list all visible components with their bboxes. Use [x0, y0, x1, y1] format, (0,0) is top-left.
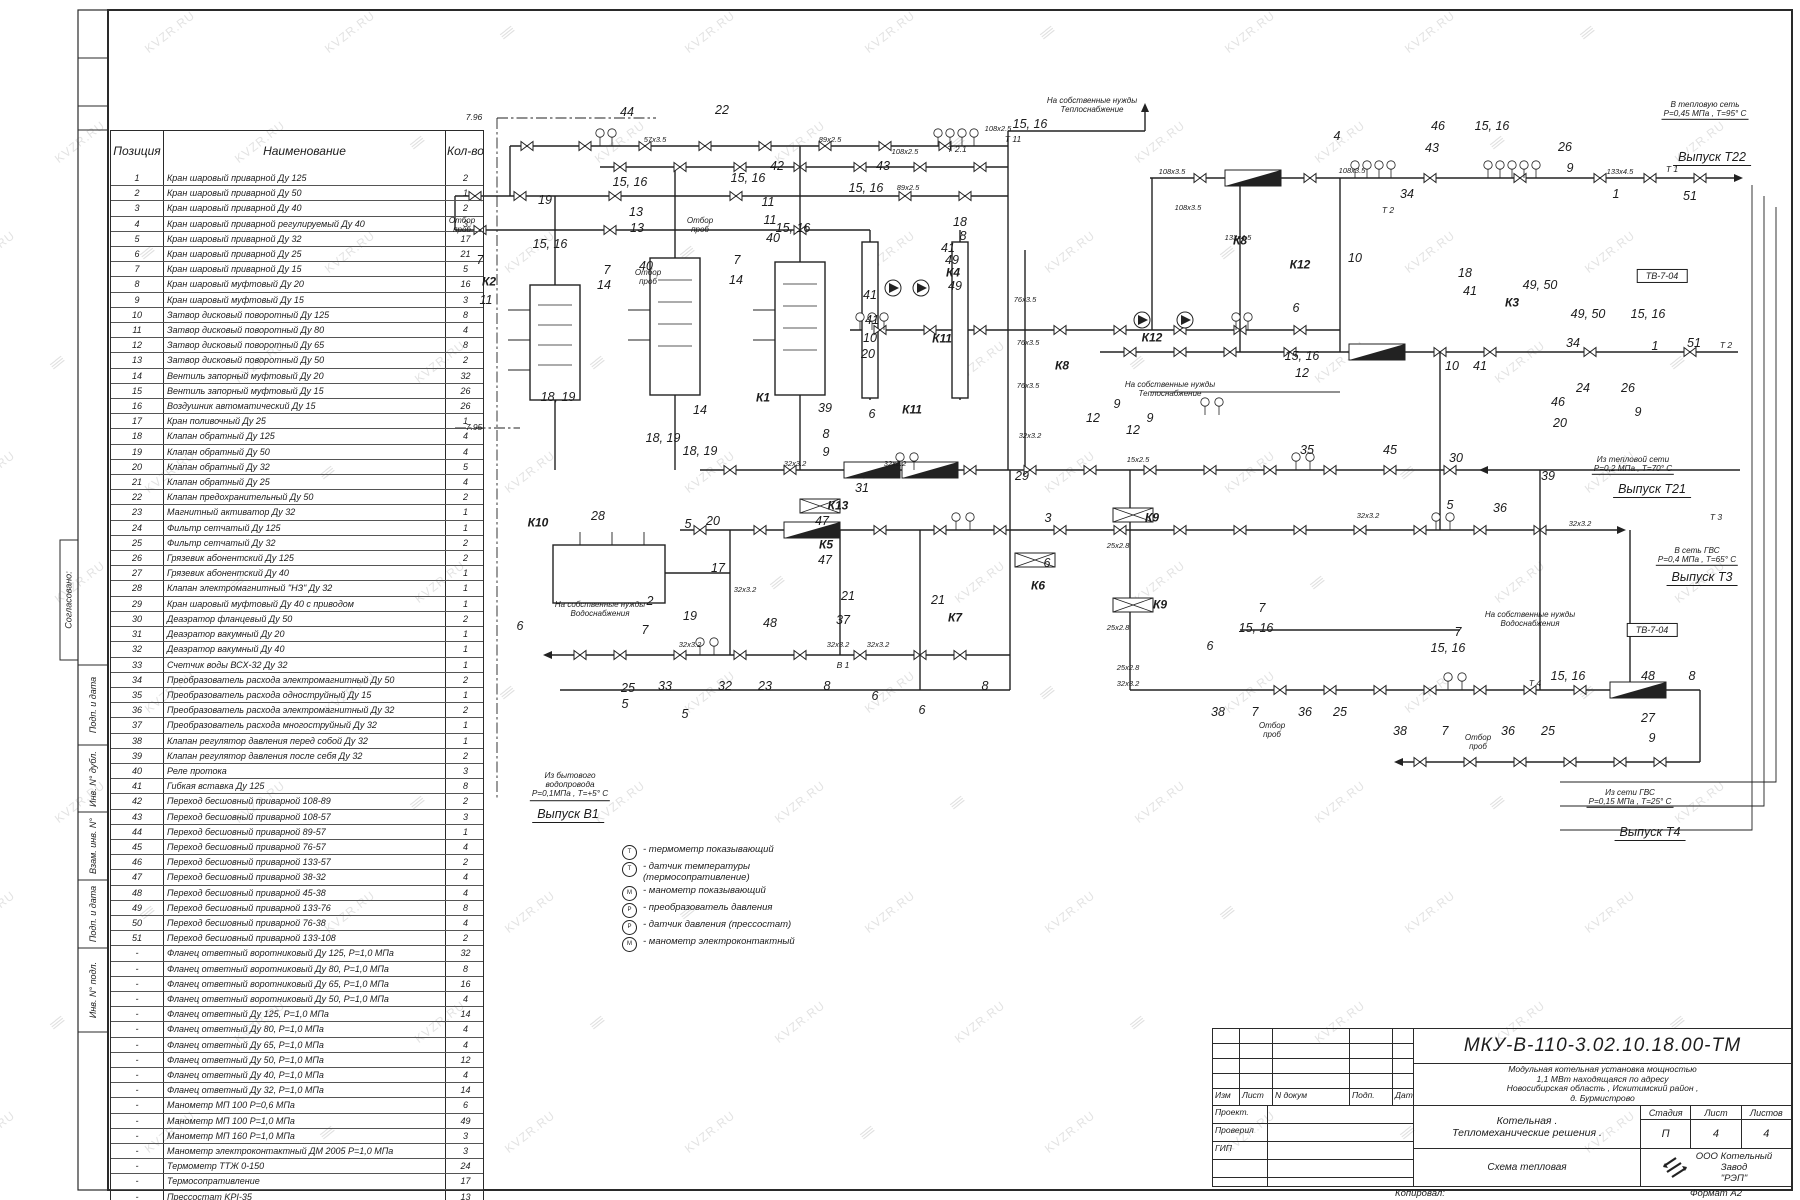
schematic-label: 36 [1493, 501, 1507, 515]
schematic-label: Из тепловой сети P=0,2 МПа , Т=70° С [1592, 455, 1674, 475]
table-row: 47Переход бесшовный приварной 38-324 [111, 869, 483, 884]
schematic-label: 89x2.5 [819, 136, 842, 144]
legend-item: Р- датчик давления (прессостат) [622, 920, 795, 935]
row-proveril: Проверил [1213, 1124, 1267, 1141]
table-row: 50Переход бесшовный приварной 76-384 [111, 915, 483, 930]
schematic-label: 11 [480, 293, 493, 307]
schematic-label: 6 [517, 619, 524, 633]
schematic-label: 18, 19 [683, 444, 718, 458]
schematic-label: 11 [764, 213, 777, 227]
col-podp: Подп. [1350, 1089, 1393, 1105]
section-title: Котельная . Тепломеханические решения . [1414, 1106, 1641, 1148]
schematic-label: 5 [685, 517, 692, 531]
instrument-symbol-icon: Р [622, 903, 637, 918]
schematic-label: На собственные нужды Теплоснабжение [1047, 97, 1137, 115]
title-block: Изм Лист N докум Подп. Дата Проект. Пров… [1212, 1028, 1792, 1187]
schematic-label: 38 [1211, 705, 1225, 719]
table-row: 13Затвор дисковый поворотный Ду 502 [111, 352, 483, 367]
schematic-label: 3 [1045, 511, 1052, 525]
schematic-label: 48 [763, 616, 777, 630]
table-row: 3Кран шаровый приварной Ду 402 [111, 200, 483, 215]
schematic-label: Из сети ГВС P=0,15 МПа , Т=25° С [1587, 788, 1674, 808]
schematic-label: 12 [1295, 366, 1309, 380]
table-row: -Термосопративление17 [111, 1173, 483, 1188]
table-row: -Фланец ответный Ду 125, P=1,0 МПа14 [111, 1006, 483, 1021]
schematic-label: 25 [1333, 705, 1347, 719]
schematic-label: 32x3.2 [734, 586, 757, 594]
schematic-label: 25x2.8 [1107, 624, 1130, 632]
schematic-label: 33 [658, 679, 672, 693]
table-row: 16Воздушник автоматический Ду 1526 [111, 398, 483, 413]
schematic-label: К5 [819, 538, 833, 551]
schematic-label: 49, 50 [1571, 307, 1606, 321]
table-row: -Манометр МП 100 P=0,6 МПа6 [111, 1097, 483, 1112]
table-row: 36Преобразователь расхода электромагнитн… [111, 702, 483, 717]
schematic-label: 9 [823, 445, 830, 459]
schematic-label: 10 [863, 331, 877, 345]
instruments [596, 129, 1540, 690]
row-proekt: Проект. [1213, 1106, 1267, 1123]
schematic-label: 9 [1114, 397, 1121, 411]
schematic-label: 41 [1463, 284, 1477, 298]
table-row: 48Переход бесшовный приварной 45-384 [111, 885, 483, 900]
schematic-label: 30 [1449, 451, 1463, 465]
schematic-label: 6 [1293, 301, 1300, 315]
instrument-symbol-icon: М [622, 937, 637, 952]
table-row: 22Клапан предохранительный Ду 502 [111, 489, 483, 504]
table-row: 40Реле протока3 [111, 763, 483, 778]
schematic-label: Отбор проб [449, 217, 475, 235]
schematic-label: Т 3 [1710, 513, 1722, 523]
table-row: 7Кран шаровый приварной Ду 155 [111, 261, 483, 276]
schematic-label: 6 [872, 689, 879, 703]
schematic-label: 7 [477, 253, 484, 267]
schematic-label: Т 2 [1720, 341, 1732, 351]
schematic-label: 15, 16 [1551, 669, 1586, 683]
table-row: 29Кран шаровый муфтовый Ду 40 с приводом… [111, 596, 483, 611]
table-row: 39Клапан регулятор давления после себя Д… [111, 748, 483, 763]
col-ndocum: N докум [1273, 1089, 1350, 1105]
schematic-label: 32x3.2 [867, 641, 890, 649]
schematic-label: Выпуск В1 [532, 807, 604, 823]
stamp-agreed: Согласовано: [60, 540, 78, 660]
schematic-label: 6 [1044, 556, 1051, 570]
sheet-label: Лист [1691, 1106, 1741, 1120]
schematic-label: 22 [715, 103, 729, 117]
table-row: 27Грязевик абонентский Ду 401 [111, 565, 483, 580]
schematic-label: 49 [948, 279, 962, 293]
schematic-label: 14 [693, 403, 707, 417]
sheets-label: Листов [1742, 1106, 1791, 1120]
schematic-label: 51 [1687, 336, 1701, 350]
schematic-label: 24 [1576, 381, 1590, 395]
table-row: 33Счетчик воды ВСХ-32 Ду 321 [111, 657, 483, 672]
schematic-label: К1 [756, 391, 770, 404]
table-row: 51Переход бесшовный приварной 133-1082 [111, 930, 483, 945]
company-cell: ООО Котельный Завод "РЭП" [1641, 1149, 1791, 1186]
schematic-label: 32x3.2 [884, 460, 907, 468]
table-row: 37Преобразователь расхода многоструйный … [111, 717, 483, 732]
parts-table-header: Позиция Наименование Кол-во [111, 131, 483, 171]
schematic-label: 1 [1652, 339, 1659, 353]
table-row: 45Переход бесшовный приварной 76-574 [111, 839, 483, 854]
schematic-label: ТВ-7-04 [1627, 623, 1678, 637]
table-row: 9Кран шаровый муфтовый Ду 153 [111, 292, 483, 307]
schematic-label: 47 [815, 514, 829, 528]
schematic-label: 15, 16 [1431, 641, 1466, 655]
schematic-label: 19 [538, 193, 552, 207]
schematic-label: Выпуск Т4 [1615, 825, 1686, 841]
schematic-label: 14 [729, 273, 743, 287]
schematic-label: 31 [855, 481, 869, 495]
schematic-label: 76x3.5 [1017, 382, 1040, 390]
schematic-label: 8 [1689, 669, 1696, 683]
schematic-label: 89x2.5 [897, 184, 920, 192]
schematic-label: 46 [1551, 395, 1565, 409]
legend-item: Т- термометр показывающий [622, 845, 795, 860]
table-row: -Фланец ответный Ду 32, P=1,0 МПа14 [111, 1082, 483, 1097]
table-row: 49Переход бесшовный приварной 133-768 [111, 900, 483, 915]
col-qty: Кол-во [446, 131, 485, 171]
table-row: -Фланец ответный Ду 50, P=1,0 МПа12 [111, 1052, 483, 1067]
schematic-label: 48 [1641, 669, 1655, 683]
schematic-label: Выпуск Т21 [1613, 482, 1691, 498]
schematic-label: 49, 50 [1523, 278, 1558, 292]
schematic-label: 42 [770, 159, 784, 173]
schematic-label: 7 [1442, 724, 1449, 738]
schematic-label: 32x3.2 [1357, 512, 1380, 520]
stamp-inv-dubl: Инв. N° дубл. [78, 745, 108, 812]
schematic-label: 8 [982, 679, 989, 693]
table-row: -Фланец ответный Ду 40, P=1,0 МПа4 [111, 1067, 483, 1082]
table-row: 10Затвор дисковый поворотный Ду 1258 [111, 307, 483, 322]
table-row: 44Переход бесшовный приварной 89-571 [111, 824, 483, 839]
schematic-label: 7 [1455, 625, 1462, 639]
table-row: -Манометр МП 100 P=1,0 МПа49 [111, 1113, 483, 1128]
table-row: 46Переход бесшовный приварной 133-572 [111, 854, 483, 869]
schematic-label: Т 2.1 [947, 145, 966, 155]
schematic-label: 1 [1613, 187, 1620, 201]
schematic-label: 7.95 [466, 423, 483, 433]
col-list: Лист [1240, 1089, 1273, 1105]
table-row: 23Магнитный активатор Ду 321 [111, 504, 483, 519]
schematic-label: К2 [482, 275, 496, 288]
schematic-label: 15, 16 [849, 181, 884, 195]
schematic-label: 57x3.5 [644, 136, 667, 144]
schematic-label: 108x3.5 [1159, 168, 1186, 176]
schematic-label: 29 [1015, 469, 1029, 483]
schematic-label: 39 [818, 401, 832, 415]
schematic-label: 26 [1621, 381, 1635, 395]
document-number: МКУ-В-110-3.02.10.18.00-ТМ [1414, 1029, 1791, 1064]
schematic-label: 25x2.8 [1107, 542, 1130, 550]
schematic-label: 28 [591, 509, 605, 523]
schematic-label: Выпуск Т22 [1673, 150, 1751, 166]
table-row: 20Клапан обратный Ду 325 [111, 459, 483, 474]
schematic-label: 133x4.5 [1607, 168, 1634, 176]
schematic-label: 18 [1458, 266, 1472, 280]
schematic-label: 12 [1086, 411, 1100, 425]
table-row: 2Кран шаровый приварной Ду 501 [111, 185, 483, 200]
schematic-label: На собственные нужды Водоснабжения [1485, 611, 1575, 629]
schematic-label: К8 [1055, 359, 1069, 372]
schematic-label: 76x3.5 [1017, 339, 1040, 347]
table-row: 18Клапан обратный Ду 1254 [111, 428, 483, 443]
schematic-label: 43 [876, 159, 890, 173]
schematic-label: На собственные нужды Водоснабжения [555, 601, 645, 619]
schematic-label: 9 [1649, 731, 1656, 745]
schematic-label: В тепловую сеть P=0,45 МПа , Т=95° С [1662, 100, 1749, 120]
schematic-label: 10 [1348, 251, 1362, 265]
schematic-label: К6 [1031, 579, 1045, 592]
schematic-label: 36 [1298, 705, 1312, 719]
table-row: 31Деаэратор вакумный Ду 201 [111, 626, 483, 641]
schematic-label: 8 [960, 229, 967, 243]
schematic-label: 15x2.5 [1127, 456, 1150, 464]
table-row: -Фланец ответный воротниковый Ду 65, P=1… [111, 976, 483, 991]
schematic-label: 13 [630, 221, 644, 235]
schematic-label: 8 [824, 679, 831, 693]
schematic-label: Т 11 [1005, 135, 1021, 145]
schematic-label: Из бытового водопровода P=0,1МПа , Т=+5°… [530, 771, 610, 801]
legend-item: М- манометр электроконтактный [622, 937, 795, 952]
table-row: -Прессостат KPI-3513 [111, 1189, 483, 1200]
schematic-label: 19 [683, 609, 697, 623]
schematic-label: 25 [1541, 724, 1555, 738]
schematic-label: К13 [828, 499, 849, 512]
schematic-label: 41 [865, 313, 879, 327]
schematic-label: 51 [1683, 189, 1697, 203]
table-row: 26Грязевик абонентский Ду 1252 [111, 550, 483, 565]
table-row: 17Кран поливочный Ду 251 [111, 413, 483, 428]
schematic-label: 6 [919, 703, 926, 717]
schematic-label: 32x3.2 [1569, 520, 1592, 528]
table-row: -Фланец ответный воротниковый Ду 80, P=1… [111, 961, 483, 976]
schematic-label: К9 [1153, 598, 1167, 611]
table-row: 42Переход бесшовный приварной 108-892 [111, 793, 483, 808]
schematic-label: Отбор проб [635, 269, 661, 287]
schematic-label: 32x3.2 [679, 641, 702, 649]
table-row: 35Преобразователь расхода одноструйный Д… [111, 687, 483, 702]
table-row: 21Клапан обратный Ду 254 [111, 474, 483, 489]
schematic-label: 9 [1147, 411, 1154, 425]
table-row: 32Деаэратор вакумный Ду 401 [111, 641, 483, 656]
schematic-label: 38 [1393, 724, 1407, 738]
col-name: Наименование [164, 131, 446, 171]
table-row: -Фланец ответный воротниковый Ду 125, P=… [111, 945, 483, 960]
stage-value: П [1641, 1120, 1691, 1148]
schematic-label: 20 [861, 347, 875, 361]
schematic-label: Отбор проб [687, 217, 713, 235]
schematic-label: 7 [642, 623, 649, 637]
schematic-label: 18, 19 [646, 431, 681, 445]
schematic-label: 7 [1259, 601, 1266, 615]
instrument-symbol-icon: М [622, 886, 637, 901]
table-row: -Манометр электроконтактный ДМ 2005 P=1,… [111, 1143, 483, 1158]
schematic-label: К4 [946, 266, 960, 279]
schematic-label: 18 [953, 215, 967, 229]
schematic-label: 26 [1558, 140, 1572, 154]
drawing-sheet: ≡≡KVZR.RUKVZR.RU≡≡KVZR.RUKVZR.RU≡≡KVZR.R… [0, 0, 1800, 1200]
schematic-label: 25x2.8 [1117, 664, 1140, 672]
schematic-label: 5 [682, 707, 689, 721]
schematic-label: К11 [902, 403, 922, 416]
schematic-label: 15, 16 [776, 221, 811, 235]
schematic-label: На собственные нужды Теплоснабжение [1125, 381, 1215, 399]
schematic-label: Т 4 [1529, 679, 1541, 689]
table-row: 41Гибкая вставка Ду 1258 [111, 778, 483, 793]
schematic-label: 20 [706, 514, 720, 528]
schematic-label: 7.96 [466, 113, 483, 123]
schematic-label: 2 [647, 594, 654, 608]
copied-by: Копировал: [1395, 1188, 1445, 1199]
schematic-label: 7 [1252, 705, 1259, 719]
schematic-label: В 1 [837, 661, 850, 671]
schematic-label: 34 [1566, 336, 1580, 350]
schematic-label: 17 [711, 561, 725, 575]
table-row: 38Клапан регулятор давления перед собой … [111, 733, 483, 748]
schematic-label: 108x2.5 [985, 125, 1012, 133]
schematic-label: 7 [604, 263, 611, 277]
schematic-label: 5 [1447, 498, 1454, 512]
table-row: 19Клапан обратный Ду 504 [111, 444, 483, 459]
schematic-label: 45 [1383, 443, 1397, 457]
schematic-label: 6 [869, 407, 876, 421]
schematic-label: 108x3.5 [1175, 204, 1202, 212]
schematic-label: 20 [1553, 416, 1567, 430]
schematic-label: 5 [622, 697, 629, 711]
legend-item: М- манометр показывающий [622, 886, 795, 901]
schematic-label: 41 [1473, 359, 1487, 373]
schematic-label: К7 [948, 611, 962, 624]
sheets-value: 4 [1742, 1120, 1791, 1148]
valves [469, 142, 1706, 767]
schematic-label: 12 [1126, 423, 1140, 437]
schematic-label: 15, 16 [1631, 307, 1666, 321]
schematic-label: 21 [841, 589, 855, 603]
table-row: 5Кран шаровый приварной Ду 3217 [111, 231, 483, 246]
schematic-label: 15, 16 [1239, 621, 1274, 635]
stage-label: Стадия [1641, 1106, 1691, 1120]
row-gip: ГИП [1213, 1142, 1267, 1159]
schematic-label: 35 [1300, 443, 1314, 457]
table-row: 8Кран шаровый муфтовый Ду 2016 [111, 276, 483, 291]
stamp-podp-data-1: Подп. и дата [78, 665, 108, 745]
schematic-label: Отбор проб [1259, 722, 1285, 740]
schematic-label: 36 [1501, 724, 1515, 738]
schematic-label: 6 [1207, 639, 1214, 653]
legend-item: Т- датчик температуры (термосопративлени… [622, 862, 795, 884]
schematic-label: К9 [1145, 511, 1159, 524]
table-row: -Фланец ответный воротниковый Ду 50, P=1… [111, 991, 483, 1006]
table-row: 25Фильтр сетчатый Ду 322 [111, 535, 483, 550]
flow-arrows [543, 103, 1743, 766]
parts-table-body: 1Кран шаровый приварной Ду 12522Кран шар… [111, 171, 483, 1200]
stamp-inv-podl: Инв. N° подл. [78, 948, 108, 1032]
schematic-label: 46 [1431, 119, 1445, 133]
schematic-label: 15, 16 [613, 175, 648, 189]
table-row: 14Вентиль запорный муфтовый Ду 2032 [111, 368, 483, 383]
schematic-label: 44 [620, 105, 634, 119]
schematic-label: Отбор проб [1465, 734, 1491, 752]
schematic-label: 23 [758, 679, 772, 693]
table-row: 43Переход бесшовный приварной 108-573 [111, 809, 483, 824]
schematic-label: 15, 16 [1285, 349, 1320, 363]
parts-table: Позиция Наименование Кол-во 1Кран шаровы… [110, 130, 484, 1200]
schematic-label: Т 2 [1382, 206, 1394, 216]
schematic-label: 7 [734, 253, 741, 267]
instrument-symbol-icon: Р [622, 920, 637, 935]
schematic-label: 43 [1425, 141, 1439, 155]
schematic-label: 25 [621, 681, 635, 695]
col-data: Дата [1393, 1089, 1413, 1105]
schematic-label: 15, 16 [1013, 117, 1048, 131]
schematic-label: 32x3.2 [784, 460, 807, 468]
schematic-label: 39 [1541, 469, 1555, 483]
instrument-symbol-icon: Т [622, 862, 637, 877]
schematic-label: К10 [528, 516, 549, 529]
schematic-label: 11 [762, 195, 775, 209]
schematic-label: 15, 16 [1475, 119, 1510, 133]
schematic-label: 21 [931, 593, 945, 607]
schematic-label: Т 1 [1666, 165, 1678, 175]
schematic-label: 8 [823, 427, 830, 441]
table-row: 4Кран шаровый приварной регулируемый Ду … [111, 216, 483, 231]
schematic-label: 47 [818, 553, 832, 567]
schematic-label: 9 [1567, 161, 1574, 175]
legend: Т- термометр показывающийТ- датчик темпе… [622, 845, 795, 954]
schematic-label: 4 [1334, 129, 1341, 143]
company-name: ООО Котельный Завод "РЭП" [1696, 1151, 1772, 1184]
table-row: -Термометр ТТЖ 0-15024 [111, 1158, 483, 1173]
schematic-label: 37 [836, 613, 850, 627]
sheet-value: 4 [1691, 1120, 1741, 1148]
schematic-label: 10 [1445, 359, 1459, 373]
project-description: Модульная котельная установка мощностью … [1414, 1064, 1791, 1106]
stamp-podp-data-2: Подп. и дата [78, 880, 108, 948]
schematic-label: 15, 16 [731, 171, 766, 185]
schematic-label: 34 [1400, 187, 1414, 201]
schematic-label: 15, 16 [533, 237, 568, 251]
table-row: -Фланец ответный Ду 65, P=1,0 МПа4 [111, 1037, 483, 1052]
table-row: 34Преобразователь расхода электромагнитн… [111, 672, 483, 687]
table-row: 30Деаэратор фланцевый Ду 502 [111, 611, 483, 626]
boilers [530, 242, 968, 603]
schematic-label: 32x3.2 [1117, 680, 1140, 688]
stamp-vzam-inv: Взам. инв. N° [78, 812, 108, 880]
schematic-label: 133x4.5 [1225, 234, 1252, 242]
instrument-symbol-icon: Т [622, 845, 637, 860]
schematic-label: К12 [1142, 331, 1163, 344]
format-label: Формат А2 [1690, 1188, 1742, 1199]
schematic-label: К12 [1290, 258, 1311, 271]
schematic-label: 32 [718, 679, 732, 693]
table-row: 28Клапан электромагнитный "НЗ" Ду 321 [111, 580, 483, 595]
table-row: 12Затвор дисковый поворотный Ду 658 [111, 337, 483, 352]
table-row: 1Кран шаровый приварной Ду 1252 [111, 171, 483, 185]
table-row: 24Фильтр сетчатый Ду 1251 [111, 520, 483, 535]
legend-item: Р- преобразователь давления [622, 903, 795, 918]
table-row: 15Вентиль запорный муфтовый Ду 1526 [111, 383, 483, 398]
schematic-label: 27 [1641, 711, 1655, 725]
schematic-label: 13 [629, 205, 643, 219]
schematic-label: К11 [932, 332, 952, 345]
schematic-label: 9 [1635, 405, 1642, 419]
schematic-label: 32x3.2 [1019, 432, 1042, 440]
schematic-label: 18, 19 [541, 390, 576, 404]
table-row: 6Кран шаровый приварной Ду 2521 [111, 246, 483, 261]
table-row: -Фланец ответный Ду 80, P=1,0 МПа4 [111, 1021, 483, 1036]
